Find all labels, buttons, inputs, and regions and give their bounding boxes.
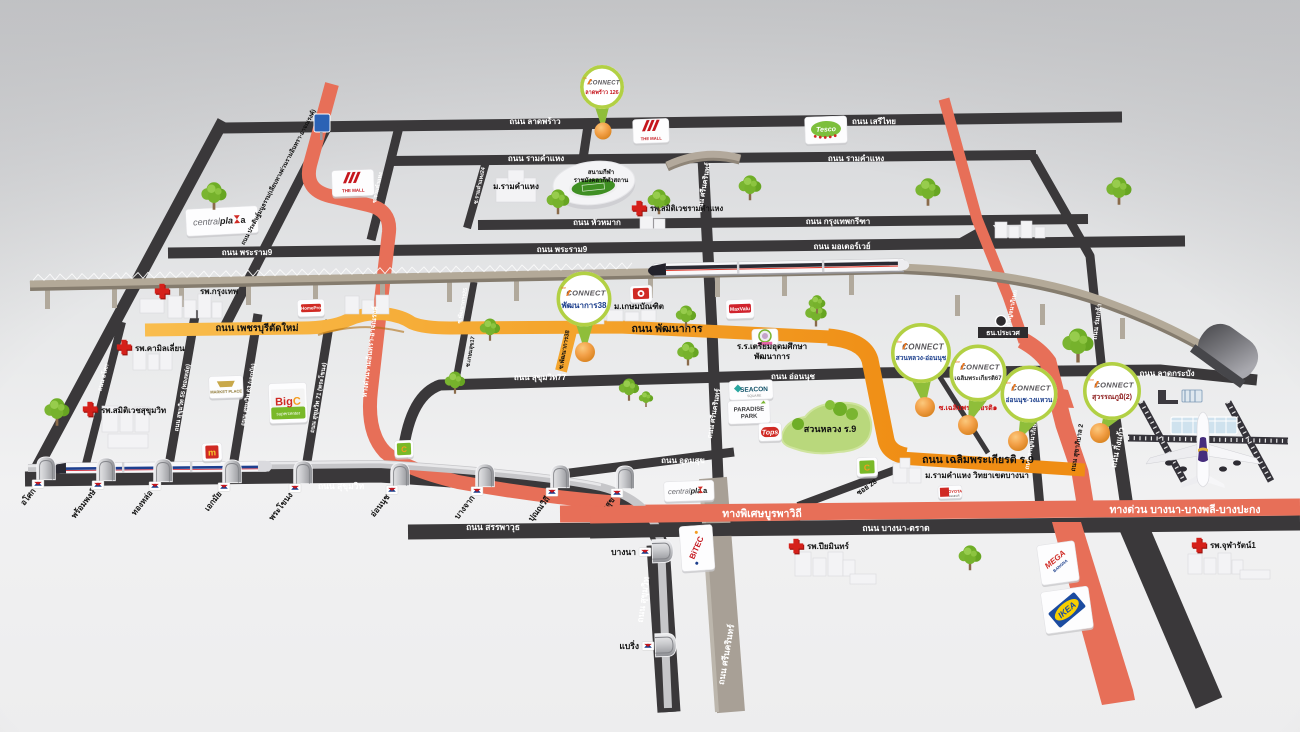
svg-text:ม.รามคำแหง วิทยาเขตบางนา: ม.รามคำแหง วิทยาเขตบางนา xyxy=(925,471,1029,480)
svg-text:ถนน พระราม9: ถนน พระราม9 xyxy=(537,245,588,254)
svg-text:ถนน พระราม9: ถนน พระราม9 xyxy=(222,248,273,257)
svg-text:SEACON: SEACON xyxy=(740,386,768,394)
svg-text:ถนน รามคำแหง: ถนน รามคำแหง xyxy=(828,154,884,163)
svg-text:CONNECT: CONNECT xyxy=(902,342,944,351)
svg-text:Tesco: Tesco xyxy=(816,126,837,134)
svg-text:THE MALL: THE MALL xyxy=(641,136,663,142)
svg-text:centralpla: centralpla xyxy=(668,486,702,496)
svg-text:ถนน อุดมสุข: ถนน อุดมสุข xyxy=(661,456,705,466)
svg-text:ถนน ลาดพร้าว: ถนน ลาดพร้าว xyxy=(509,116,561,126)
svg-text:ถนน อ่อนนุช: ถนน อ่อนนุช xyxy=(771,372,816,382)
svg-text:SQUARE: SQUARE xyxy=(747,394,762,399)
svg-text:พัฒนาการ: พัฒนาการ xyxy=(754,352,791,361)
svg-text:ร.ร.เตรียมอุดมศึกษา: ร.ร.เตรียมอุดมศึกษา xyxy=(737,341,807,352)
svg-text:the: the xyxy=(955,360,960,364)
svg-text:the: the xyxy=(1089,378,1094,382)
svg-text:ถนน เสรีไทย: ถนน เสรีไทย xyxy=(852,116,896,126)
svg-text:ม.เกษมบัณฑิต: ม.เกษมบัณฑิต xyxy=(614,302,664,311)
svg-text:MaxValu: MaxValu xyxy=(730,306,750,313)
svg-text:ทางด่วน บางนา-บางพลี-บางปะกง: ทางด่วน บางนา-บางพลี-บางปะกง xyxy=(1109,503,1260,516)
svg-text:บางนา: บางนา xyxy=(611,547,636,557)
svg-text:CONNECT: CONNECT xyxy=(566,289,606,298)
svg-text:ถนน สรรพาวุธ: ถนน สรรพาวุธ xyxy=(466,522,520,533)
svg-text:ถนน บางนา-ตราด: ถนน บางนา-ตราด xyxy=(862,523,930,533)
svg-text:ราชมังคลากีฬาสถาน: ราชมังคลากีฬาสถาน xyxy=(574,176,629,184)
svg-text:ทางพิเศษบูรพาวิถี: ทางพิเศษบูรพาวิถี xyxy=(722,507,801,521)
svg-text:BigC: BigC xyxy=(275,396,301,409)
svg-text:สวนหลวง ร.9: สวนหลวง ร.9 xyxy=(804,424,856,434)
svg-text:ถนน เฉลิมพระเกียรติ ร.9: ถนน เฉลิมพระเกียรติ ร.9 xyxy=(922,453,1034,466)
svg-text:ธน.ประเวศ: ธน.ประเวศ xyxy=(986,329,1020,337)
svg-text:m: m xyxy=(208,447,216,457)
svg-text:รพ.สมิติเวชสุขุมวิท: รพ.สมิติเวชสุขุมวิท xyxy=(101,406,166,416)
svg-text:CONNECT: CONNECT xyxy=(1011,384,1051,393)
svg-text:ม.รามคำแหง: ม.รามคำแหง xyxy=(493,182,539,191)
svg-text:ลาดพร้าว 126: ลาดพร้าว 126 xyxy=(585,88,619,96)
svg-text:centralpla: centralpla xyxy=(193,215,233,227)
svg-text:ซ.เฉลิมพระเกียรติ๑: ซ.เฉลิมพระเกียรติ๑ xyxy=(939,404,997,412)
svg-text:C: C xyxy=(864,462,870,472)
svg-text:PARADISE: PARADISE xyxy=(734,406,765,413)
svg-text:สวนหลวง-อ่อนนุช: สวนหลวง-อ่อนนุช xyxy=(896,354,947,362)
svg-text:C: C xyxy=(401,445,407,454)
svg-text:มอเตอร์: มอเตอร์ xyxy=(949,494,960,498)
svg-text:พัฒนาการ38: พัฒนาการ38 xyxy=(562,301,608,310)
svg-text:supercenter: supercenter xyxy=(276,411,300,417)
svg-text:สนามกีฬา: สนามกีฬา xyxy=(588,168,614,176)
svg-text:the: the xyxy=(897,340,902,344)
svg-text:ถนน มอเตอร์เวย์: ถนน มอเตอร์เวย์ xyxy=(813,241,870,251)
svg-text:HomePro: HomePro xyxy=(301,305,321,311)
svg-text:CONNECT: CONNECT xyxy=(960,363,1000,372)
svg-text:สุวรรณภูมิ(2): สุวรรณภูมิ(2) xyxy=(1092,393,1132,402)
svg-text:CONNECT: CONNECT xyxy=(588,80,621,86)
svg-text:รพ.กรุงเทพ: รพ.กรุงเทพ xyxy=(200,287,238,297)
svg-text:รพ.จุฬารัตน์1: รพ.จุฬารัตน์1 xyxy=(1210,540,1256,551)
svg-text:รพ.สมิติเวชรามคำแหง: รพ.สมิติเวชรามคำแหง xyxy=(650,204,724,213)
svg-text:THE MALL: THE MALL xyxy=(342,188,365,194)
svg-text:รพ.คามิลเลี่ยน: รพ.คามิลเลี่ยน xyxy=(135,342,185,353)
svg-text:the: the xyxy=(561,286,566,290)
svg-text:ถนน สุขุมวิท: ถนน สุขุมวิท xyxy=(318,481,365,492)
svg-text:PARK: PARK xyxy=(741,414,758,421)
svg-text:อ่อนนุช-วงแหวน: อ่อนนุช-วงแหวน xyxy=(1006,396,1053,404)
svg-text:รพ.ปียมินทร์: รพ.ปียมินทร์ xyxy=(807,541,850,551)
svg-text:the: the xyxy=(583,76,587,80)
svg-text:เฉลิมพระเกียรติ67: เฉลิมพระเกียรติ67 xyxy=(954,374,1002,382)
svg-text:ถนน รามคำแหง: ถนน รามคำแหง xyxy=(508,154,564,163)
svg-text:ถนน กรุงเทพกรีฑา: ถนน กรุงเทพกรีฑา xyxy=(806,216,871,227)
svg-text:แบริ่ง: แบริ่ง xyxy=(619,639,639,651)
svg-text:ถนน หัวหมาก: ถนน หัวหมาก xyxy=(573,218,621,227)
svg-text:ถนน สุขุมวิท77: ถนน สุขุมวิท77 xyxy=(514,373,567,383)
svg-text:the: the xyxy=(1006,381,1011,385)
svg-text:CONNECT: CONNECT xyxy=(1094,381,1134,390)
svg-text:ถนน พัฒนาการ: ถนน พัฒนาการ xyxy=(631,323,702,335)
svg-text:Tops: Tops xyxy=(762,429,779,437)
svg-text:ถนน ลาดกระบัง: ถนน ลาดกระบัง xyxy=(1139,369,1194,378)
svg-text:ถนน เพชรบุรีตัดใหม่: ถนน เพชรบุรีตัดใหม่ xyxy=(215,322,298,334)
